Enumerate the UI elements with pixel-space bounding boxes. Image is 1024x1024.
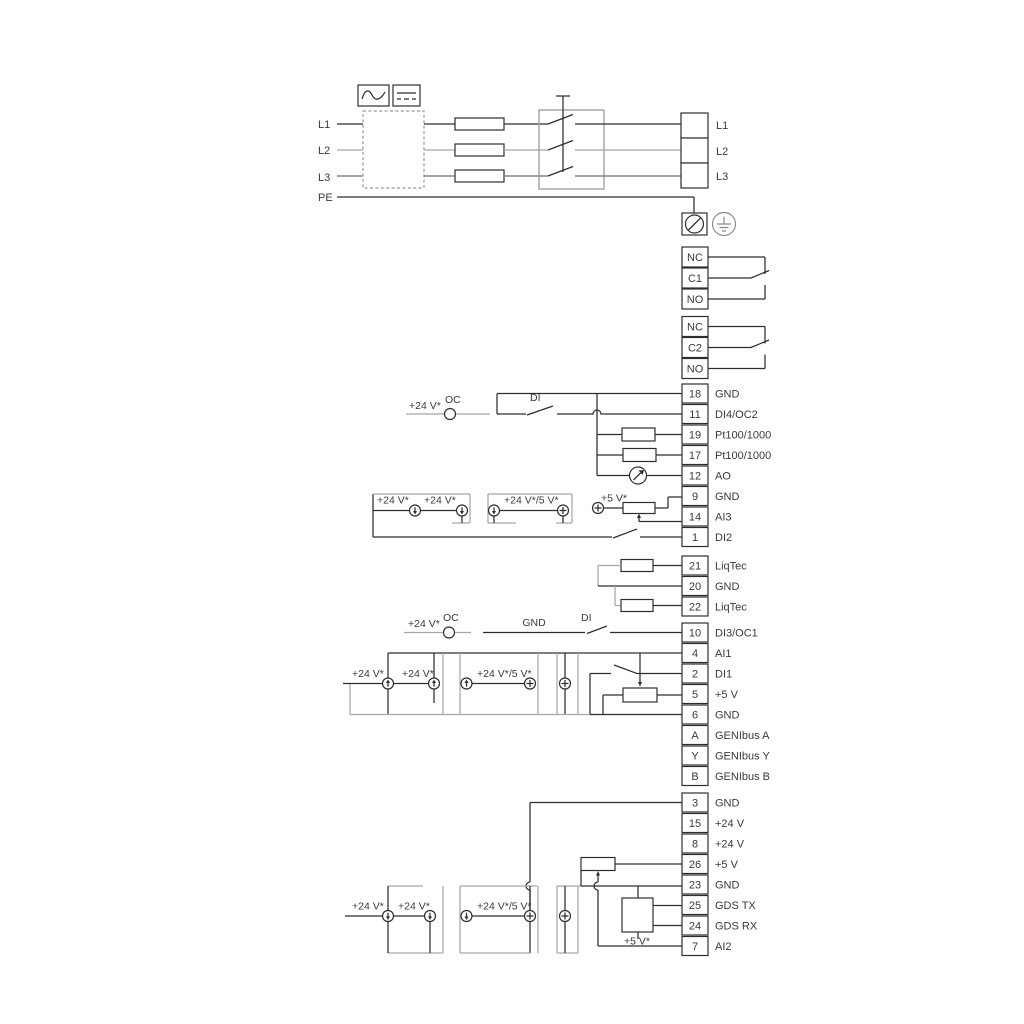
terminal-label: +5 V	[715, 689, 739, 701]
di-label: DI	[530, 392, 541, 404]
terminal-number: B	[691, 771, 698, 783]
terminal-label: AO	[715, 470, 731, 482]
liqtec-sensor-circuit	[598, 560, 682, 612]
terminal-number: 23	[689, 879, 701, 891]
terminal-number: 5	[692, 689, 698, 701]
relay-1-block: NC C1 NO	[682, 247, 769, 309]
terminal-label: L2	[716, 146, 728, 158]
terminal-number: 19	[689, 429, 701, 441]
diagram-canvas: L1 L2 L3 PE	[0, 0, 1024, 1024]
terminal-number: 1	[692, 532, 698, 544]
voltage-annotation: +24 V*	[352, 901, 384, 913]
current-source-down-icon	[457, 505, 468, 523]
terminal-label: DI1	[715, 668, 732, 680]
terminal-label: Pt100/1000	[715, 429, 771, 441]
terminal-number: NO	[687, 364, 704, 376]
terminal-label: GENIbus A	[715, 730, 770, 742]
terminal-label: GND	[715, 491, 740, 503]
oc-circle-icon	[445, 409, 456, 420]
terminal-label: AI1	[715, 648, 732, 660]
current-source-plus-icon	[558, 505, 569, 523]
terminal-number: 4	[692, 648, 698, 660]
terminal-number: 26	[689, 859, 701, 871]
terminal-label: LiqTec	[715, 560, 747, 572]
terminal-strip-3: 10 4 2 5 6 A Y B DI3/OC1 AI1 DI1 +5 V GN…	[682, 623, 770, 786]
ac-symbol-box	[358, 85, 389, 106]
terminal-label: DI3/OC1	[715, 627, 758, 639]
terminal-number: 20	[689, 581, 701, 593]
ground-symbol	[713, 213, 736, 236]
terminal-number: C2	[688, 343, 702, 355]
oc-circle-icon	[444, 627, 455, 638]
voltage-annotation: +24 V*	[377, 495, 409, 507]
changeover-contact	[708, 257, 769, 299]
di2-switch	[373, 529, 682, 538]
terminal-label: GND	[715, 581, 740, 593]
terminal-number: 17	[689, 450, 701, 462]
terminal-number: 8	[692, 838, 698, 850]
ai1-circuit: +24 V* +24 V* +24 V*/5 V*	[343, 653, 682, 715]
current-source-up-icon	[383, 678, 394, 715]
terminal-label: L1	[716, 120, 728, 132]
terminal-label: +5 V	[715, 859, 739, 871]
terminal-strip-2: 21 20 22 LiqTec GND LiqTec	[598, 556, 747, 616]
di-switch	[587, 626, 607, 634]
terminal-number: 7	[692, 941, 698, 953]
power-input-label: L1	[318, 119, 330, 131]
terminal-number: 15	[689, 818, 701, 830]
terminal-number: 25	[689, 900, 701, 912]
oc-label: OC	[445, 394, 461, 406]
gds-sensor-box: +5 V*	[622, 886, 682, 948]
current-source-down-icon	[425, 911, 436, 954]
terminal-label: GND	[715, 709, 740, 721]
emc-filter-box	[358, 85, 424, 188]
voltage-annotation: +24 V*	[408, 618, 440, 630]
fuse	[455, 118, 504, 182]
terminal-strip-4: 3 15 8 26 23 25 24 7 GND +24 V +24 V +5 …	[682, 793, 758, 956]
current-source-down-icon	[489, 505, 500, 523]
relay-2-block: NC C2 NO	[682, 317, 769, 379]
di-switch	[527, 406, 553, 415]
pe-terminal	[337, 197, 707, 235]
terminal-number: NC	[687, 322, 703, 334]
resistor	[597, 428, 682, 441]
terminal-number: 2	[692, 668, 698, 680]
terminal-number: 10	[689, 627, 701, 639]
current-source-plus-icon	[593, 503, 604, 514]
power-input-section: L1 L2 L3 PE	[318, 85, 736, 236]
voltage-annotation: +24 V*/5 V*	[477, 901, 532, 913]
terminal-label: GDS RX	[715, 920, 758, 932]
terminal-label: DI4/OC2	[715, 409, 758, 421]
di4-oc2-circuit: +24 V* OC DI	[406, 392, 682, 484]
voltage-annotation: +24 V*	[424, 495, 456, 507]
ai2-circuit: +24 V* +24 V* +24 V*/5 V*	[345, 803, 682, 954]
terminal-label: GND	[715, 797, 740, 809]
terminal-label: GND	[715, 879, 740, 891]
terminal-label: DI2	[715, 532, 732, 544]
terminal-number: 22	[689, 601, 701, 613]
current-source-plus-icon	[525, 678, 536, 689]
terminal-number: 14	[689, 511, 701, 523]
terminal-number: 21	[689, 560, 701, 572]
ai3-circuit: +24 V* +24 V* +24 V*/5 V* +5 V*	[373, 493, 682, 539]
resistor	[597, 449, 682, 462]
power-input-label: L3	[318, 172, 330, 184]
terminal-number: 12	[689, 470, 701, 482]
voltage-annotation: +24 V*/5 V*	[504, 495, 559, 507]
terminal-number: NC	[687, 252, 703, 264]
terminal-label: L3	[716, 171, 728, 183]
changeover-contact	[708, 327, 769, 369]
terminal-number: A	[691, 730, 699, 742]
terminal-label: GDS TX	[715, 900, 756, 912]
potentiometer	[603, 653, 682, 715]
terminal-label: Pt100/1000	[715, 450, 771, 462]
current-source-up-icon	[461, 678, 472, 689]
terminal-number: 3	[692, 797, 698, 809]
terminal-label: +24 V	[715, 818, 745, 830]
terminal-number: 9	[692, 491, 698, 503]
voltage-annotation: +24 V*	[409, 400, 441, 412]
main-switch	[539, 96, 604, 189]
current-source-down-icon	[383, 886, 394, 953]
terminal-number: 18	[689, 388, 701, 400]
voltage-annotation: +24 V*	[398, 901, 430, 913]
terminal-label: +24 V	[715, 838, 745, 850]
terminal-strip-1: 18 11 19 17 12 9 14 1 GND DI4/OC2 Pt100/…	[682, 384, 771, 547]
di-label: DI	[581, 612, 592, 624]
terminal-number: 6	[692, 709, 698, 721]
di3-oc1-circuit: +24 V* OC GND DI	[404, 612, 682, 638]
power-input-label: PE	[318, 192, 333, 204]
terminal-label: LiqTec	[715, 601, 747, 613]
mains-terminal-block: L1 L2 L3	[681, 113, 728, 188]
terminal-label: GND	[715, 388, 740, 400]
current-source-down-icon	[461, 911, 472, 922]
voltage-annotation: +24 V*	[352, 668, 384, 680]
terminal-number: 24	[689, 920, 701, 932]
current-source-plus-icon	[560, 653, 571, 715]
oc-label: OC	[443, 612, 459, 624]
terminal-label: GENIbus B	[715, 771, 770, 783]
current-source-down-icon	[410, 505, 421, 516]
current-source-plus-icon	[560, 886, 571, 953]
wiring-diagram: L1 L2 L3 PE	[0, 0, 1024, 1024]
terminal-number: C1	[688, 273, 702, 285]
terminal-number: 11	[689, 409, 700, 421]
terminal-label: AI3	[715, 511, 732, 523]
voltage-annotation: +5 V*	[624, 936, 650, 948]
gnd-label: GND	[522, 617, 546, 629]
terminal-label: GENIbus Y	[715, 750, 770, 762]
power-input-label: L2	[318, 145, 330, 157]
voltage-annotation: +24 V*/5 V*	[477, 668, 532, 680]
dc-symbol-box	[393, 85, 420, 106]
voltage-annotation: +24 V*	[402, 668, 434, 680]
terminal-number: NO	[687, 294, 704, 306]
terminal-number: Y	[691, 750, 699, 762]
ao-meter-icon	[597, 467, 682, 484]
terminal-label: AI2	[715, 941, 732, 953]
